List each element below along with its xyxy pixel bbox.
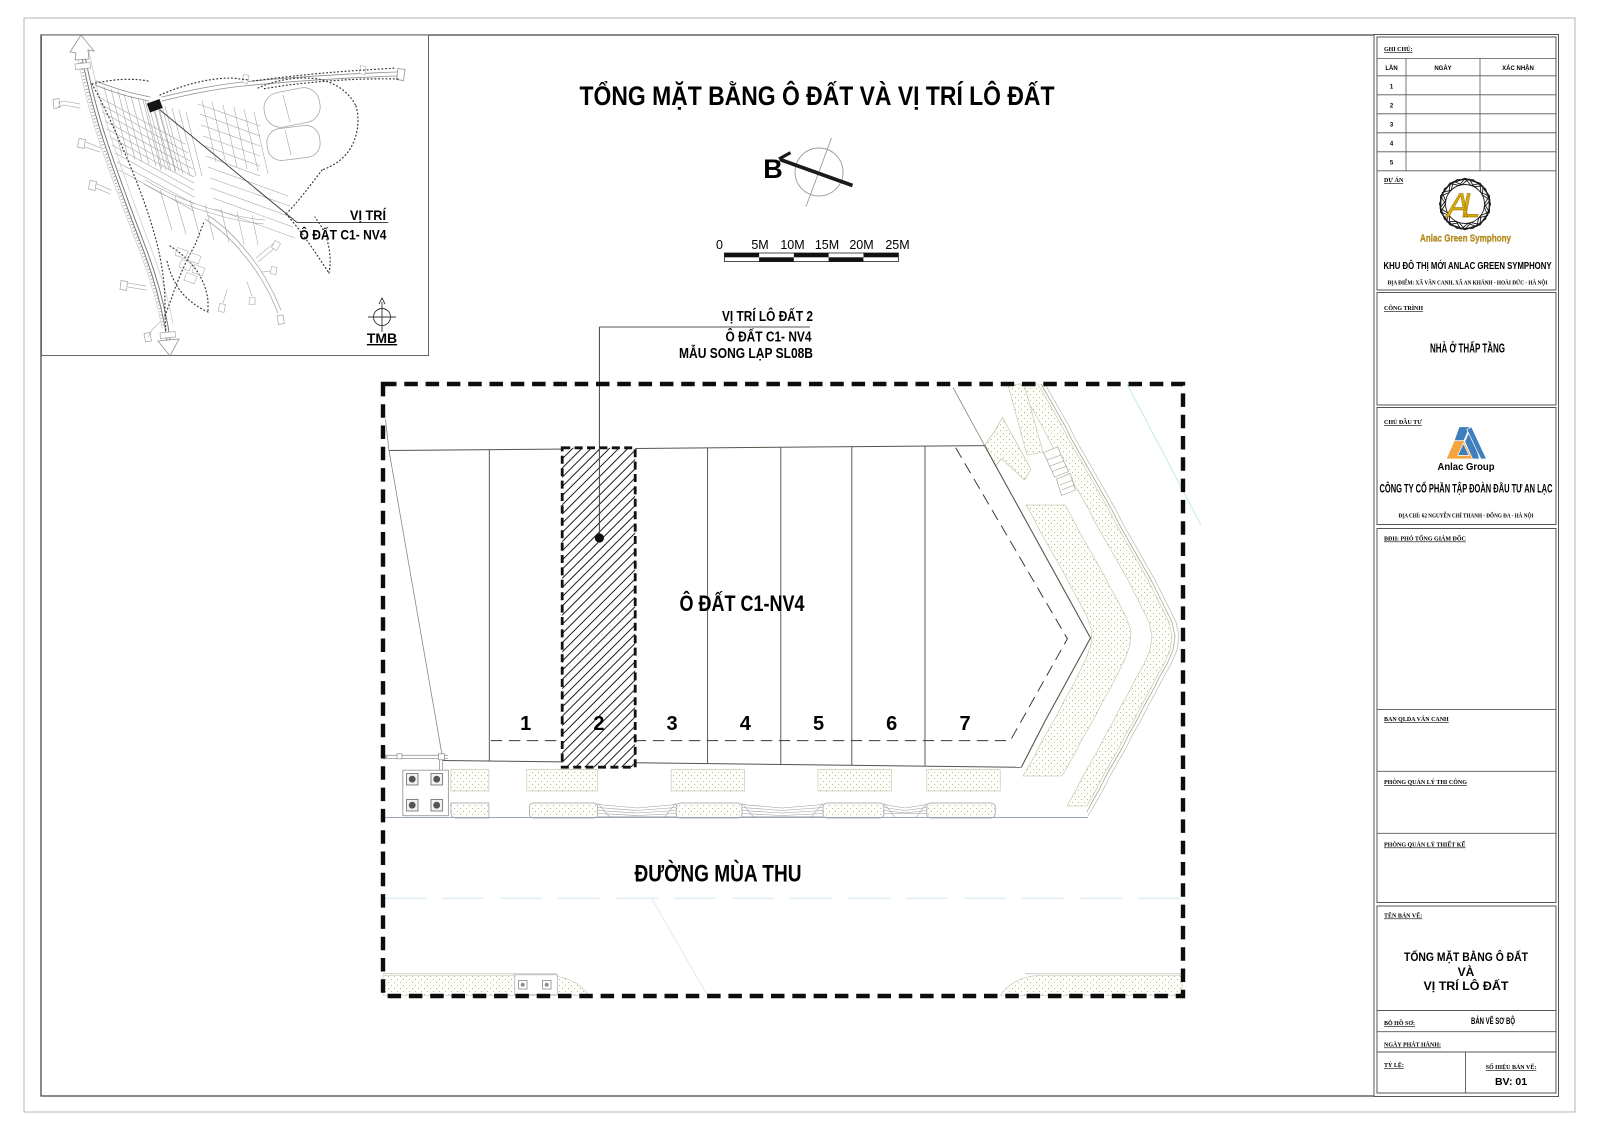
- svg-text:7: 7: [959, 713, 970, 735]
- svg-text:Ô ĐẤT C1- NV4: Ô ĐẤT C1- NV4: [726, 328, 812, 346]
- svg-text:NGÀY PHÁT HÀNH:: NGÀY PHÁT HÀNH:: [1384, 1041, 1441, 1049]
- svg-text:3: 3: [667, 713, 678, 735]
- svg-text:NHÀ Ở THẤP TẦNG: NHÀ Ở THẤP TẦNG: [1430, 341, 1505, 356]
- svg-text:BỘ HỒ SƠ:: BỘ HỒ SƠ:: [1384, 1019, 1415, 1027]
- svg-text:VỊ TRÍ: VỊ TRÍ: [350, 207, 387, 223]
- svg-text:Ô ĐẤT C1-NV4: Ô ĐẤT C1-NV4: [680, 591, 806, 616]
- svg-text:PHÒNG QUẢN LÝ THI CÔNG: PHÒNG QUẢN LÝ THI CÔNG: [1384, 778, 1467, 786]
- svg-text:2: 2: [593, 713, 604, 735]
- svg-text:XÁC NHẬN: XÁC NHẬN: [1502, 65, 1534, 72]
- svg-text:TỔNG MẶT BẰNG Ô ĐẤT VÀ VỊ TRÍ: TỔNG MẶT BẰNG Ô ĐẤT VÀ VỊ TRÍ LÔ ĐẤT: [580, 80, 1055, 111]
- svg-text:Ô ĐẤT C1- NV4: Ô ĐẤT C1- NV4: [300, 226, 387, 243]
- svg-text:BAN QLDA VÂN CANH: BAN QLDA VÂN CANH: [1384, 715, 1449, 723]
- svg-text:NGÀY: NGÀY: [1434, 65, 1451, 72]
- svg-text:TMB: TMB: [367, 330, 397, 346]
- svg-text:LẦN: LẦN: [1385, 65, 1397, 72]
- svg-text:BẢN VẼ SƠ BỘ: BẢN VẼ SƠ BỘ: [1471, 1015, 1515, 1026]
- svg-text:ĐƯỜNG MÙA THU: ĐƯỜNG MÙA THU: [635, 860, 802, 888]
- svg-text:CHỦ ĐẦU TƯ: CHỦ ĐẦU TƯ: [1384, 418, 1422, 426]
- svg-text:0: 0: [716, 238, 723, 252]
- svg-text:4: 4: [740, 713, 752, 735]
- svg-text:B: B: [763, 154, 783, 184]
- svg-text:BĐH: PHÓ TỔNG GIÁM ĐỐC: BĐH: PHÓ TỔNG GIÁM ĐỐC: [1384, 535, 1466, 543]
- svg-text:TÊN BẢN VẼ:: TÊN BẢN VẼ:: [1384, 912, 1422, 920]
- svg-text:TỶ LỆ:: TỶ LỆ:: [1384, 1061, 1404, 1069]
- svg-text:VỊ TRÍ LÔ ĐẤT: VỊ TRÍ LÔ ĐẤT: [1424, 978, 1510, 993]
- svg-text:25M: 25M: [885, 238, 909, 252]
- svg-text:Anlac Green Symphony: Anlac Green Symphony: [1420, 233, 1511, 245]
- svg-text:MẪU SONG LẠP SL08B: MẪU SONG LẠP SL08B: [679, 345, 813, 362]
- svg-text:VÀ: VÀ: [1458, 964, 1475, 979]
- svg-text:1: 1: [520, 713, 531, 735]
- svg-text:Anlac Group: Anlac Group: [1438, 462, 1495, 473]
- svg-text:5M: 5M: [751, 238, 768, 252]
- svg-text:10M: 10M: [780, 238, 804, 252]
- svg-text:GHI CHÚ:: GHI CHÚ:: [1384, 45, 1413, 53]
- svg-text:PHÒNG QUẢN LÝ THIẾT KẾ: PHÒNG QUẢN LÝ THIẾT KẾ: [1384, 841, 1465, 849]
- svg-text:6: 6: [886, 713, 897, 735]
- svg-text:VỊ TRÍ LÔ ĐẤT 2: VỊ TRÍ LÔ ĐẤT 2: [722, 307, 813, 325]
- svg-text:BV: 01: BV: 01: [1495, 1076, 1527, 1088]
- svg-text:SỐ HIỆU BẢN VẼ:: SỐ HIỆU BẢN VẼ:: [1486, 1063, 1537, 1071]
- svg-text:KHU ĐÔ THỊ MỚI ANLAC GREEN SYM: KHU ĐÔ THỊ MỚI ANLAC GREEN SYMPHONY: [1384, 259, 1552, 272]
- svg-text:20M: 20M: [849, 238, 873, 252]
- svg-text:ĐỊA ĐIỂM: XÃ VÂN CANH, XÃ AN K: ĐỊA ĐIỂM: XÃ VÂN CANH, XÃ AN KHÁNH - HOÀ…: [1388, 279, 1548, 287]
- svg-text:TỔNG MẶT BẰNG Ô ĐẤT: TỔNG MẶT BẰNG Ô ĐẤT: [1404, 949, 1529, 964]
- svg-text:DỰ ÁN: DỰ ÁN: [1384, 176, 1404, 184]
- svg-text:CÔNG TY CỔ PHẦN TẬP ĐOÀN ĐẦU T: CÔNG TY CỔ PHẦN TẬP ĐOÀN ĐẦU TƯ AN LẠC: [1380, 483, 1553, 496]
- svg-text:CÔNG TRÌNH: CÔNG TRÌNH: [1384, 304, 1423, 312]
- svg-text:15M: 15M: [815, 238, 839, 252]
- svg-text:ĐỊA CHỈ: 62 NGUYỄN CHÍ THANH -: ĐỊA CHỈ: 62 NGUYỄN CHÍ THANH - ĐỐNG ĐA -…: [1399, 512, 1534, 520]
- svg-text:5: 5: [813, 713, 824, 735]
